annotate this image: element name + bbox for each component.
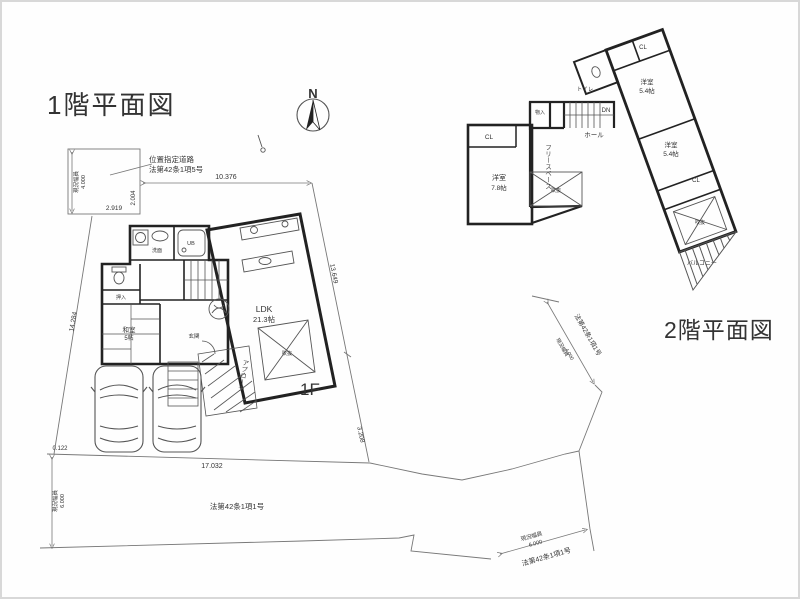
balcony-label: バルコニー	[687, 260, 717, 267]
dim-top-road-width-value: 4.000	[81, 175, 87, 189]
car-2	[149, 366, 205, 452]
mono-label: 物入	[535, 109, 545, 116]
utility-pole-icon	[258, 135, 265, 152]
floor2-void-wing-label: 吹抜	[695, 219, 705, 226]
toilet-label: トイレ	[577, 87, 594, 93]
washitsu-size: 5帖	[124, 334, 133, 342]
washer-icon	[133, 230, 168, 245]
se-road-law: 法第42条1項1号	[521, 545, 572, 568]
bed3-size: 5.4帖	[663, 149, 679, 158]
dim-17032: 17.032	[201, 463, 223, 470]
north-label: N	[308, 86, 317, 101]
dim-0122: 0.122	[52, 446, 68, 452]
ldk-label: LDK	[256, 304, 273, 314]
bed3-label: 洋室	[665, 140, 679, 149]
dim-10376: 10.376	[215, 174, 237, 181]
toilet-icon	[112, 267, 126, 284]
ldk-size: 21.3帖	[253, 314, 276, 324]
compass: N	[297, 86, 329, 131]
dn-label: DN	[602, 108, 611, 114]
floor1-mark: 1F	[300, 380, 320, 399]
west-road-width-value: 6.000	[60, 494, 66, 508]
dim-2919: 2.919	[106, 205, 123, 212]
cl-wing-lower-label: CL	[692, 178, 700, 184]
car-1	[91, 366, 147, 452]
second-floor-title: 2階平面図	[664, 317, 774, 343]
cl-wing-top-label: CL	[639, 45, 647, 51]
genkan-label: 玄関	[188, 332, 200, 340]
dim-2004: 2.004	[131, 190, 137, 206]
site-boundary	[40, 149, 602, 559]
washitsu-label: 和室	[123, 325, 137, 334]
oshiire-label: 押入	[116, 294, 126, 301]
ub-label: UB	[187, 241, 195, 247]
south-road-law: 法第42条1項1号	[210, 501, 264, 511]
floor2-void-middle-label: 吹抜	[551, 187, 561, 194]
tatami-grid	[102, 304, 160, 364]
east-road-law: 法第42条1項1号	[573, 312, 605, 358]
bed2-label: 洋室	[641, 77, 655, 86]
road-note-line2: 法第42条1項5号	[149, 164, 203, 174]
floor2-plan: CL 洋室 7.8帖 物入 DN ホール 吹抜	[468, 30, 736, 291]
site-dimensions	[52, 152, 593, 554]
bed1-label: 洋室	[492, 173, 506, 182]
bed2-size: 5.4帖	[639, 86, 655, 95]
dim-top-road-width-name: 現況幅員	[72, 171, 80, 194]
bed1-size: 7.8帖	[491, 183, 507, 192]
first-floor-title: 1階平面図	[47, 90, 175, 120]
road-note-line1: 位置指定道路	[149, 154, 194, 164]
dim-3208: 3.208	[355, 426, 365, 444]
senmen-label: 洗面	[152, 247, 162, 254]
floor2-stairs	[564, 102, 614, 128]
hall-label: ホール	[584, 131, 604, 139]
floor1-void-label: 吹抜	[282, 350, 292, 357]
cl-left-label: CL	[485, 134, 494, 141]
dim-13649: 13.649	[328, 263, 339, 284]
west-road-width-name: 現況幅員	[51, 490, 59, 513]
floorplan-drawing: 1階平面図 2階平面図 N 位置指定道路 法第4	[2, 2, 800, 599]
free-space-label: フリースペース	[543, 144, 550, 190]
tree-icon	[209, 299, 229, 319]
floorplan-page: 1階平面図 2階平面図 N 位置指定道路 法第4	[0, 0, 800, 599]
floor1-plan: 吹抜 LDK 21.3帖	[91, 214, 335, 452]
dim-14284: 14.284	[68, 311, 78, 332]
floor1-void	[258, 320, 315, 380]
compass-needle	[306, 100, 313, 130]
se-road-width-value: 6.000	[528, 539, 543, 549]
